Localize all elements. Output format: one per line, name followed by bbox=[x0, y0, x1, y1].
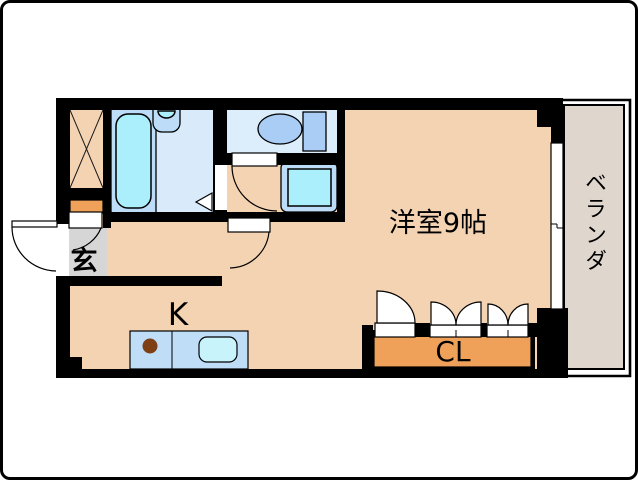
floorplan: 洋室9帖 K CL 玄 ベランダ bbox=[0, 0, 638, 480]
wall-segment bbox=[537, 308, 568, 378]
wall-segment bbox=[337, 98, 345, 222]
bathroom-door-opening bbox=[215, 165, 227, 210]
closet-door-panel bbox=[375, 323, 415, 337]
floorplan-drawing bbox=[0, 0, 638, 480]
cabinet-door-leaf bbox=[69, 212, 102, 228]
wall-segment bbox=[362, 325, 373, 371]
wall-segment bbox=[56, 276, 222, 286]
front-door-leaf bbox=[12, 221, 57, 227]
toilet-tank bbox=[303, 112, 326, 151]
washing-machine-pan-inner bbox=[288, 169, 331, 206]
stove-burner-icon bbox=[143, 339, 158, 354]
toilet-icon bbox=[258, 114, 302, 144]
main-room-label: 洋室9帖 bbox=[368, 209, 508, 239]
hall-door-leaf bbox=[228, 218, 270, 232]
kitchen-sink-icon bbox=[199, 337, 237, 362]
wall-segment bbox=[481, 323, 487, 337]
wall-segment bbox=[70, 357, 82, 371]
door-swing-arc-icon bbox=[12, 227, 56, 271]
wall-segment bbox=[56, 98, 563, 110]
wall-segment bbox=[56, 188, 111, 200]
wall-segment bbox=[551, 98, 563, 143]
shoe-cabinet-icon bbox=[70, 200, 103, 213]
wall-segment bbox=[103, 98, 111, 228]
entrance-label: 玄 bbox=[64, 247, 104, 277]
wall-segment bbox=[56, 369, 568, 378]
wall-segment bbox=[56, 98, 70, 224]
closet-label: CL bbox=[418, 337, 488, 367]
balcony-label: ベランダ bbox=[580, 161, 606, 285]
bathtub-icon bbox=[116, 114, 151, 208]
wall-segment bbox=[528, 323, 537, 337]
toilet-door-leaf bbox=[232, 153, 277, 166]
wall-segment bbox=[415, 323, 430, 337]
wall-segment bbox=[56, 276, 70, 378]
kitchen-label: K bbox=[158, 299, 198, 331]
